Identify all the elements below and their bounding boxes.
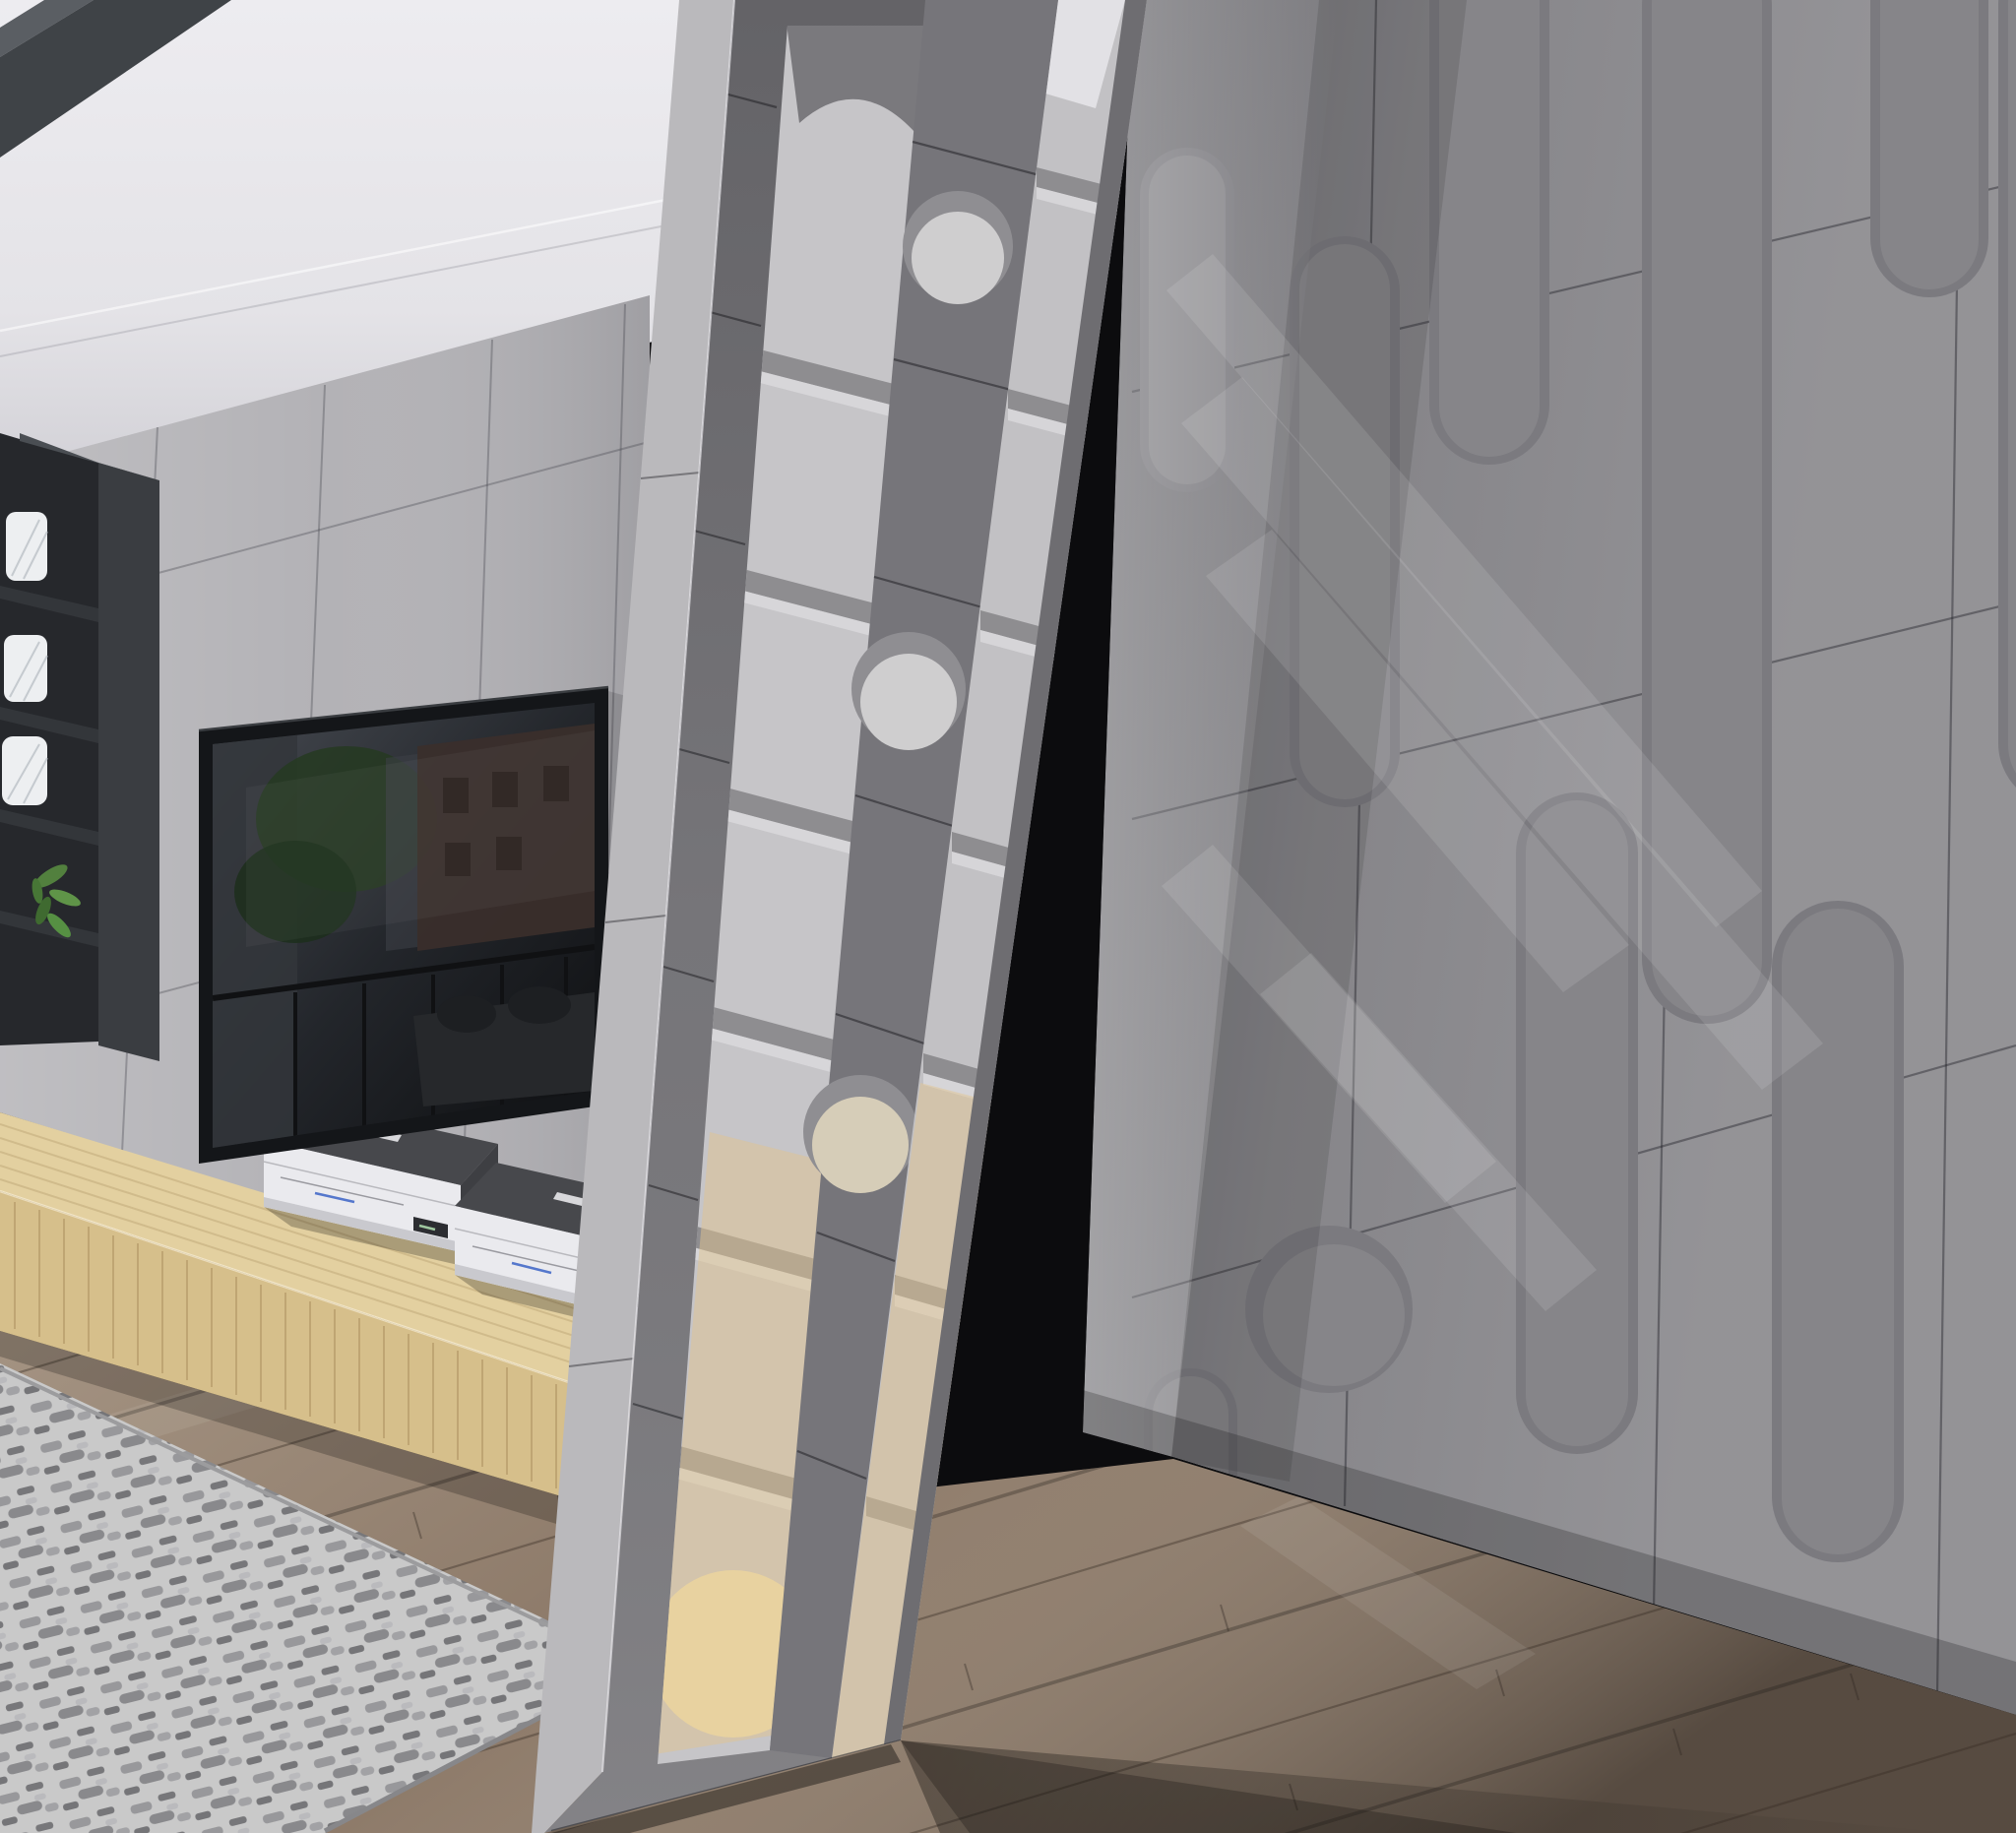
capsule-recess (1870, 0, 1988, 297)
vase (6, 512, 47, 581)
render-viewport (0, 0, 2016, 1833)
interior-render (0, 0, 2016, 1833)
sofa-pillow (437, 995, 496, 1033)
shelf-side-panel (98, 463, 159, 1061)
vase (2, 736, 47, 805)
capsule-recess (1998, 0, 2016, 807)
tv (199, 687, 608, 1164)
feature-wall (1083, 0, 2016, 1715)
vase (4, 635, 47, 702)
shelf-unit (0, 433, 159, 1061)
sofa-pillow (508, 986, 571, 1024)
capsule-recess (1772, 901, 1904, 1562)
